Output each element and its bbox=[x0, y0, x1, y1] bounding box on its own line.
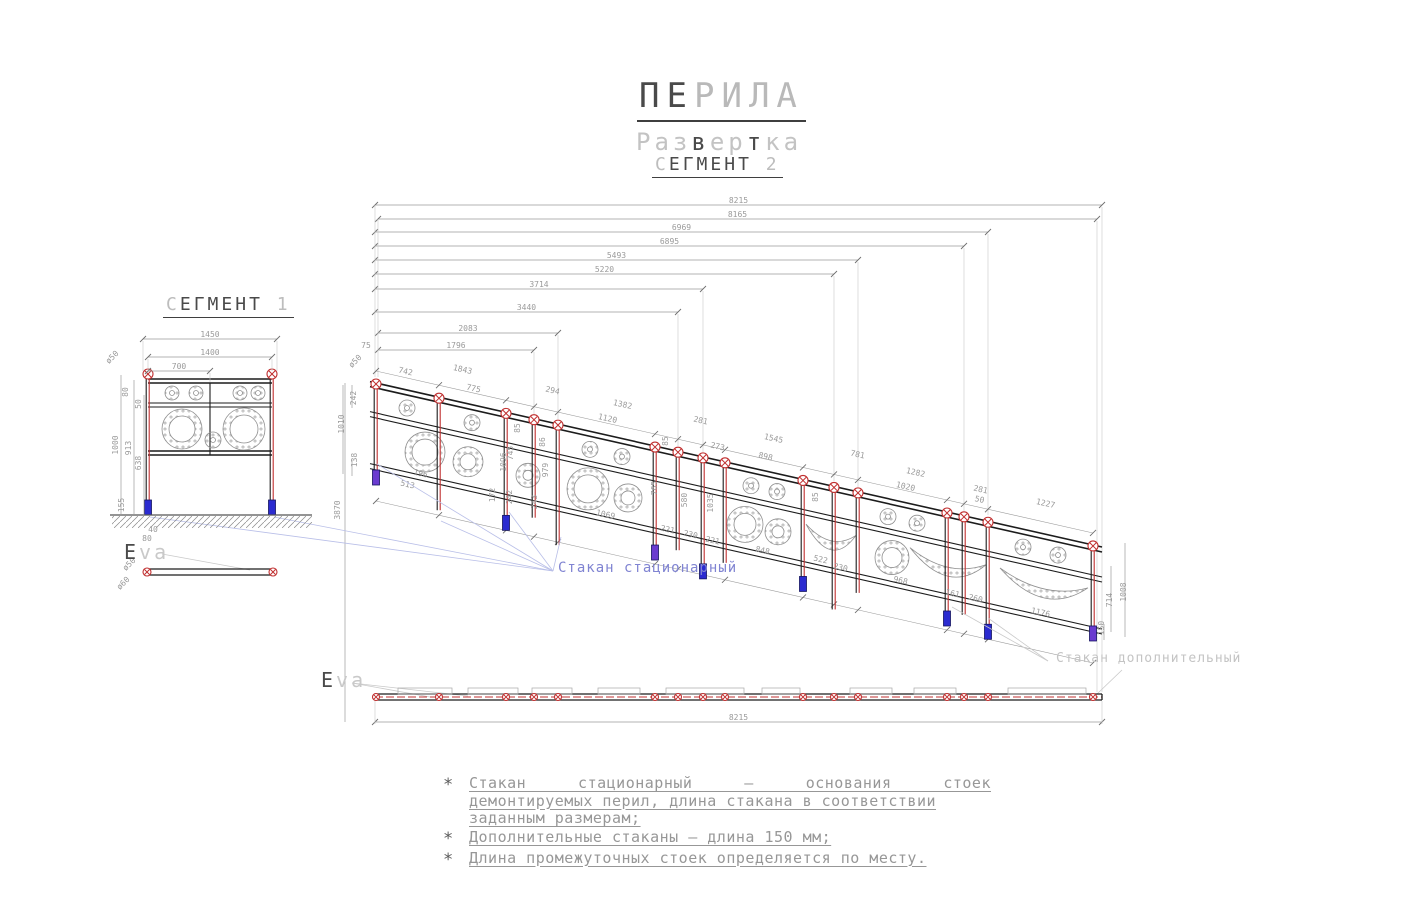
dimension-value: 1176 bbox=[1030, 606, 1051, 619]
handrail-development-bar: 8215 bbox=[372, 688, 1105, 725]
segment-2-elevation: 8215816569696895549352203714344020831796… bbox=[333, 196, 1128, 722]
notes-list: *Стакан стационарный – основания стоекде… bbox=[443, 775, 991, 871]
leader-gray bbox=[988, 618, 1048, 661]
cup-stationary-label: Стакан стационарный bbox=[558, 560, 737, 576]
dimension-value: 172 bbox=[488, 488, 497, 503]
dimension-value: ø50 bbox=[104, 349, 121, 366]
dimension-value: 700 bbox=[172, 362, 187, 371]
ornament-scroll bbox=[165, 386, 179, 400]
dimension-value: 242 bbox=[349, 391, 358, 406]
dimension-value: 8215 bbox=[729, 713, 748, 722]
cup-socket bbox=[503, 515, 510, 530]
dimension-value: 8165 bbox=[728, 210, 747, 219]
ornament-scroll bbox=[189, 386, 203, 400]
cup-socket bbox=[944, 611, 951, 626]
dimension-value: 150 bbox=[1097, 621, 1106, 636]
dimension-value: 1227 bbox=[1035, 497, 1056, 510]
cup-plan-rect bbox=[532, 688, 572, 694]
drawing-title: ПЕРИЛА bbox=[637, 76, 806, 122]
drawing-subtitle: Развертка bbox=[636, 128, 802, 156]
dim-tick bbox=[531, 534, 537, 540]
dimension-value: 1069 bbox=[595, 508, 616, 521]
note-bullet: * bbox=[443, 775, 469, 828]
dimension-value: 155 bbox=[117, 498, 126, 513]
cup-socket bbox=[652, 545, 659, 560]
dimension-value: 1545 bbox=[763, 432, 784, 445]
ornament-scroll bbox=[223, 408, 265, 450]
dimension-value: 580 bbox=[680, 493, 689, 508]
ornament-scroll bbox=[765, 519, 791, 545]
dim-tick bbox=[722, 577, 728, 583]
dimension-value: 8215 bbox=[729, 196, 748, 205]
dimension-value: 281 bbox=[693, 415, 709, 427]
ornament-scroll bbox=[727, 506, 763, 542]
dim-tick bbox=[652, 431, 658, 437]
ornament-scroll bbox=[1050, 547, 1066, 563]
cup-additional-label: Стакан дополнительный bbox=[1056, 651, 1241, 666]
dimension-value: ø50 bbox=[347, 353, 364, 370]
dimension-value: 1020 bbox=[895, 480, 916, 493]
leader-blue bbox=[509, 512, 553, 571]
cup-socket bbox=[145, 500, 152, 515]
ornament-scroll bbox=[1015, 539, 1031, 555]
cup-socket bbox=[373, 470, 380, 485]
dimension-value: 1035 bbox=[706, 493, 715, 512]
cup-plan-rect bbox=[762, 688, 800, 694]
dimension-value: 242 bbox=[505, 490, 514, 505]
dimension-value: 781 bbox=[850, 449, 866, 461]
dimension-value: 1382 bbox=[612, 398, 633, 411]
dimension-value: 230 bbox=[683, 529, 699, 541]
cup-plan-rect bbox=[850, 688, 892, 694]
dimension-value: 243 bbox=[530, 495, 539, 510]
cad-sheet: 8215816569696895549352203714344020831796… bbox=[0, 0, 1428, 919]
note-item: *Дополнительные стаканы – длина 150 мм; bbox=[443, 829, 991, 849]
dimension-value: 638 bbox=[134, 456, 143, 471]
dim-tick bbox=[855, 607, 861, 613]
ornament-scroll bbox=[162, 409, 202, 449]
dimension-value: 1096 bbox=[499, 452, 508, 471]
leader-gray bbox=[162, 554, 250, 570]
note-item: *Стакан стационарный – основания стоекде… bbox=[443, 775, 991, 828]
ground-hatch bbox=[112, 516, 312, 528]
note-text: Длина промежуточных стоек определяется п… bbox=[469, 850, 991, 870]
dimension-value: 80 bbox=[121, 387, 130, 397]
dimension-value: 3870 bbox=[333, 500, 342, 519]
dim-tick bbox=[944, 497, 950, 503]
dimension-value: 1008 bbox=[1119, 582, 1128, 601]
dimension-value: 85 bbox=[661, 436, 670, 446]
ornament-scroll bbox=[614, 484, 642, 512]
dimension-value: 1450 bbox=[200, 330, 219, 339]
note-text: Стакан стационарный – основания стоекдем… bbox=[469, 775, 991, 828]
dimension-value: 6969 bbox=[672, 223, 691, 232]
dimension-value: 968 bbox=[893, 575, 909, 587]
cup-plan-rect bbox=[1008, 688, 1086, 694]
dimension-value: 1000 bbox=[111, 435, 120, 454]
leader-blue bbox=[274, 517, 553, 571]
rail-line bbox=[370, 412, 1102, 577]
ornament-scroll bbox=[875, 541, 909, 575]
note-item: *Длина промежуточных стоек определяется … bbox=[443, 850, 991, 870]
dimension-value: 196 bbox=[413, 468, 429, 480]
dimension-value: 848 bbox=[755, 545, 771, 557]
ornament-scroll bbox=[464, 415, 480, 431]
cup-socket bbox=[800, 576, 807, 591]
dimension-value: 3714 bbox=[529, 280, 548, 289]
ornament-scroll bbox=[405, 432, 445, 472]
ornament-scroll bbox=[614, 449, 630, 465]
dim-line-slanted bbox=[376, 371, 1093, 533]
ornament-scroll bbox=[909, 515, 925, 531]
dimension-value: 273 bbox=[710, 441, 726, 453]
dimension-value: 1796 bbox=[446, 341, 465, 350]
ornament-scroll bbox=[205, 432, 221, 448]
dim-tick bbox=[800, 464, 806, 470]
dim-tick bbox=[373, 498, 379, 504]
dimension-value: 85 bbox=[811, 492, 820, 502]
rail-line bbox=[370, 464, 1102, 629]
dimension-value: 6895 bbox=[660, 237, 679, 246]
dimension-value: 161 bbox=[945, 588, 961, 600]
dimension-value: 3440 bbox=[517, 303, 536, 312]
dim-tick bbox=[1090, 530, 1096, 536]
dimension-value: 5493 bbox=[607, 251, 626, 260]
ornament-arch bbox=[1000, 568, 1088, 599]
dimension-value: 765 bbox=[650, 481, 659, 496]
leader-gray bbox=[1097, 670, 1122, 694]
dimension-value: 1400 bbox=[200, 348, 219, 357]
dimension-value: 898 bbox=[758, 451, 774, 463]
segment-1-elevation: 14501400700100091363850801554080ø50 bbox=[104, 330, 312, 543]
dimension-value: 1843 bbox=[452, 363, 473, 376]
dimension-value: 1282 bbox=[905, 466, 926, 479]
dimension-value: 85 bbox=[513, 423, 522, 433]
dimension-value: ø60 bbox=[115, 575, 132, 592]
cup-plan-rect bbox=[598, 688, 640, 694]
dim-tick bbox=[944, 627, 950, 633]
note-bullet: * bbox=[443, 850, 469, 870]
dim-tick bbox=[503, 397, 509, 403]
view-label-segment1: Eva bbox=[124, 540, 169, 564]
ornament-scroll bbox=[567, 468, 609, 510]
dim-tick bbox=[961, 631, 967, 637]
rail-line bbox=[370, 469, 1102, 634]
note-bullet: * bbox=[443, 829, 469, 849]
dimension-value: 50 bbox=[134, 399, 143, 409]
cup-plan-rect bbox=[468, 688, 518, 694]
dim-tick bbox=[436, 512, 442, 518]
ornament-scroll bbox=[233, 386, 247, 400]
ornament-scroll bbox=[251, 386, 265, 400]
dimension-value: 913 bbox=[124, 441, 133, 456]
dimension-value: 260 bbox=[968, 593, 984, 605]
cup-socket bbox=[985, 624, 992, 639]
dimension-value: 513 bbox=[400, 479, 416, 491]
dimension-value: 294 bbox=[545, 385, 561, 397]
note-text: Дополнительные стаканы – длина 150 мм; bbox=[469, 829, 991, 849]
cup-socket bbox=[269, 500, 276, 515]
dimension-value: 775 bbox=[466, 383, 482, 395]
segment-1-heading: СЕГМЕНТ 1 bbox=[163, 294, 294, 318]
segment-2-heading: СЕГМЕНТ 2 bbox=[652, 154, 783, 178]
ornament-scroll bbox=[769, 484, 785, 500]
dimension-value: 40 bbox=[148, 525, 158, 534]
dim-tick bbox=[800, 594, 806, 600]
dimension-value: 742 bbox=[398, 366, 414, 378]
view-label-segment2: Eva bbox=[321, 668, 366, 692]
ornament-scroll bbox=[880, 509, 896, 525]
dimension-value: 1120 bbox=[597, 412, 618, 425]
ornament-scroll bbox=[516, 463, 540, 487]
ornament-scroll bbox=[453, 447, 483, 477]
ornament-scroll bbox=[399, 400, 415, 416]
dimension-value: 138 bbox=[350, 453, 359, 468]
dimension-value: 979 bbox=[541, 463, 550, 478]
dimension-value: 86 bbox=[538, 437, 547, 447]
ornament-arch bbox=[806, 524, 856, 550]
ornament-scroll bbox=[743, 478, 759, 494]
dimension-value: 2083 bbox=[458, 324, 477, 333]
dim-tick bbox=[436, 382, 442, 388]
dimension-value: 75 bbox=[361, 341, 371, 350]
dimension-value: 5220 bbox=[595, 265, 614, 274]
ornament-scroll bbox=[582, 441, 598, 457]
cup-socket bbox=[1090, 626, 1097, 641]
dimension-value: 50 bbox=[974, 494, 986, 505]
dimension-value: 221 bbox=[660, 524, 676, 536]
dimension-value: 714 bbox=[1105, 593, 1114, 608]
cup-plan-rect bbox=[914, 688, 956, 694]
